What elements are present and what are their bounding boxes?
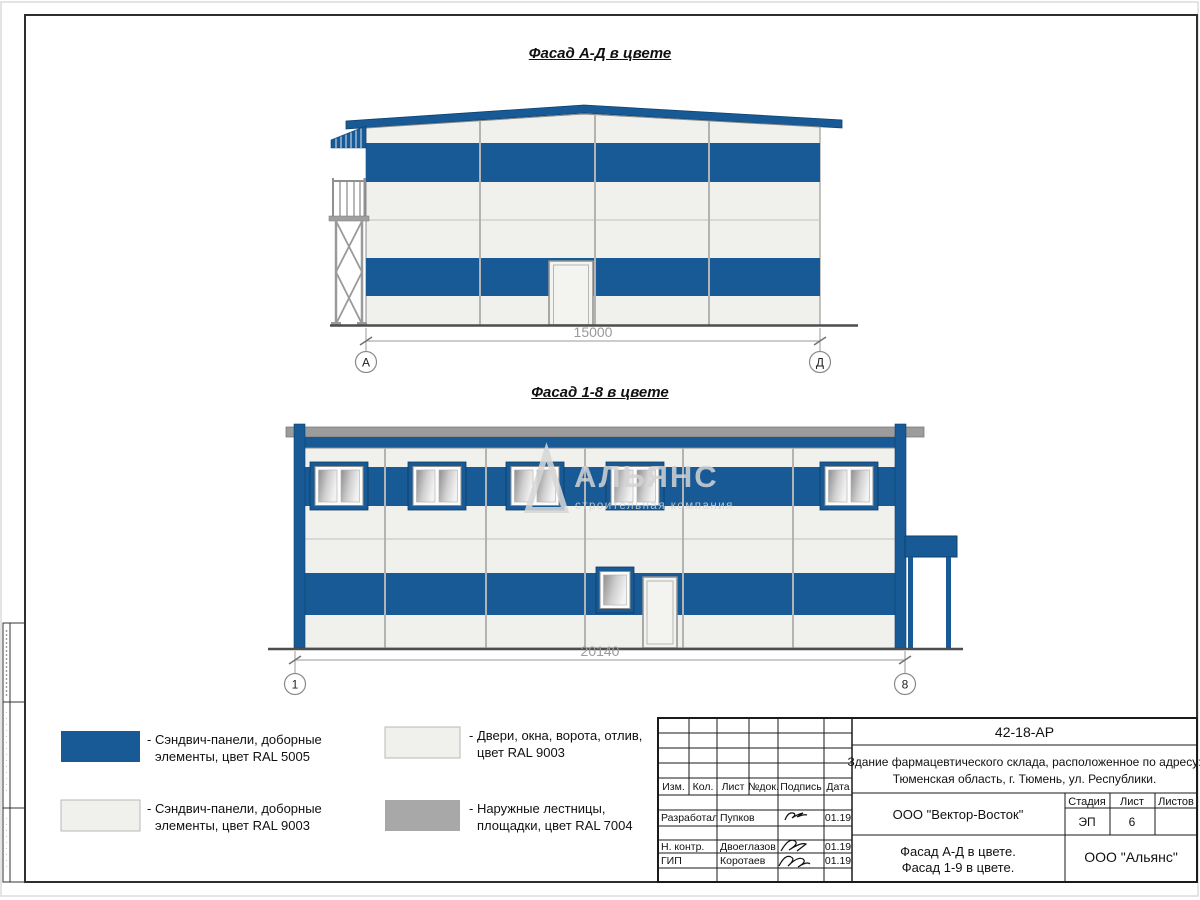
facade2-small-window (596, 567, 634, 613)
facade2-top-blue-band (294, 437, 906, 448)
tb-col-podpis: Подпись (780, 781, 822, 793)
tb-name-developer: Пупков (720, 812, 755, 824)
facade1-door (549, 261, 593, 325)
title-block: Изм. Кол. Лист №док. Подпись Дата Разраб… (658, 718, 1200, 882)
facade1-dimension-label: 15000 (574, 324, 613, 340)
drawing-sheet: Фасад А-Д в цвете Фасад 1-8 в цвете (0, 0, 1200, 900)
tb-project-line2: Тюменская область, г. Тюмень, ул. Респуб… (893, 772, 1157, 786)
window (820, 462, 878, 510)
facade2-corner-column-left (294, 424, 305, 648)
tb-company: ООО "Вектор-Восток" (893, 807, 1024, 822)
tb-col-ndok: №док. (748, 781, 779, 793)
tb-col-list: Лист (722, 781, 745, 793)
tb-drawing-title-line2: Фасад 1-9 в цвете. (902, 860, 1015, 875)
watermark-tagline: строительная компания (575, 500, 734, 512)
stair-railing (333, 178, 365, 216)
legend: - Сэндвич-панели, доборные элементы, цве… (61, 727, 642, 833)
tb-drawing-title-line1: Фасад А-Д в цвете. (900, 844, 1016, 859)
tb-name-gip: Коротаев (720, 855, 766, 867)
tb-role-developer: Разработал (661, 812, 718, 824)
legend-label: - Наружные лестницы, (469, 801, 605, 816)
signature-ncontrol-gip (779, 840, 810, 867)
tb-date-ncontrol: 01.19 (825, 841, 851, 853)
stair-truss (331, 221, 367, 325)
tb-date-gip: 01.19 (825, 855, 851, 867)
tb-role-gip: ГИП (661, 855, 682, 867)
facade2-elevation: АЛЬЯНС строительная компания 20140 1 8 (268, 424, 963, 695)
legend-label: элементы, цвет RAL 5005 (155, 749, 310, 764)
axis-label-1: 1 (292, 678, 299, 692)
tb-stage-value: ЭП (1078, 815, 1095, 829)
legend-swatch-ral7004 (385, 800, 460, 831)
tb-stage-label: Стадия (1068, 796, 1106, 808)
legend-swatch-ral5005 (61, 731, 140, 762)
window (310, 462, 368, 510)
facade1-elevation: 15000 А Д (329, 105, 858, 373)
tb-name-ncontrol: Двоеглазов (720, 841, 776, 853)
facade2-corner-column-right (895, 424, 906, 648)
facade1-stair-tower (329, 126, 369, 325)
stair-platform (329, 216, 369, 221)
axis-label-d: Д (816, 356, 824, 370)
signature-developer (785, 813, 807, 820)
tb-sheets-label: Листов (1158, 796, 1194, 808)
tb-col-data: Дата (826, 781, 849, 793)
drawing-canvas: 15000 А Д (0, 0, 1200, 900)
legend-label: - Двери, окна, ворота, отлив, (469, 728, 642, 743)
facade2-dimension-label: 20140 (581, 643, 620, 659)
facade1-blue-stripe-upper (366, 143, 820, 182)
legend-label: площадки, цвет RAL 7004 (477, 818, 633, 833)
facade2-axis-markers: 1 8 (285, 674, 916, 695)
tb-sheet-label: Лист (1120, 796, 1144, 808)
axis-label-a: А (362, 356, 370, 370)
window (408, 462, 466, 510)
legend-label: цвет RAL 9003 (477, 745, 565, 760)
legend-label: - Сэндвич-панели, доборные (147, 732, 322, 747)
tb-date-developer: 01.19 (825, 812, 851, 824)
tb-project-line1: Здание фармацевтического склада, располо… (847, 755, 1200, 769)
facade1-axis-markers: А Д (356, 352, 831, 373)
legend-swatch-ral9003-doors (385, 727, 460, 758)
tb-col-kol: Кол. (693, 781, 714, 793)
watermark-name: АЛЬЯНС (574, 459, 719, 494)
legend-label: - Сэндвич-панели, доборные (147, 801, 322, 816)
tb-doc-number: 42-18-АР (995, 724, 1054, 740)
facade2-canopy (905, 536, 957, 649)
tb-col-izm: Изм. (662, 781, 685, 793)
tb-role-ncontrol: Н. контр. (661, 841, 704, 853)
legend-label: элементы, цвет RAL 9003 (155, 818, 310, 833)
legend-swatch-ral9003-panels (61, 800, 140, 831)
tb-org: ООО "Альянс" (1084, 849, 1178, 865)
axis-label-8: 8 (902, 678, 909, 692)
facade2-door (643, 577, 677, 648)
approval-strip (3, 623, 25, 882)
tb-sheet-value: 6 (1129, 815, 1136, 829)
facade2-roof-cap (286, 427, 924, 437)
